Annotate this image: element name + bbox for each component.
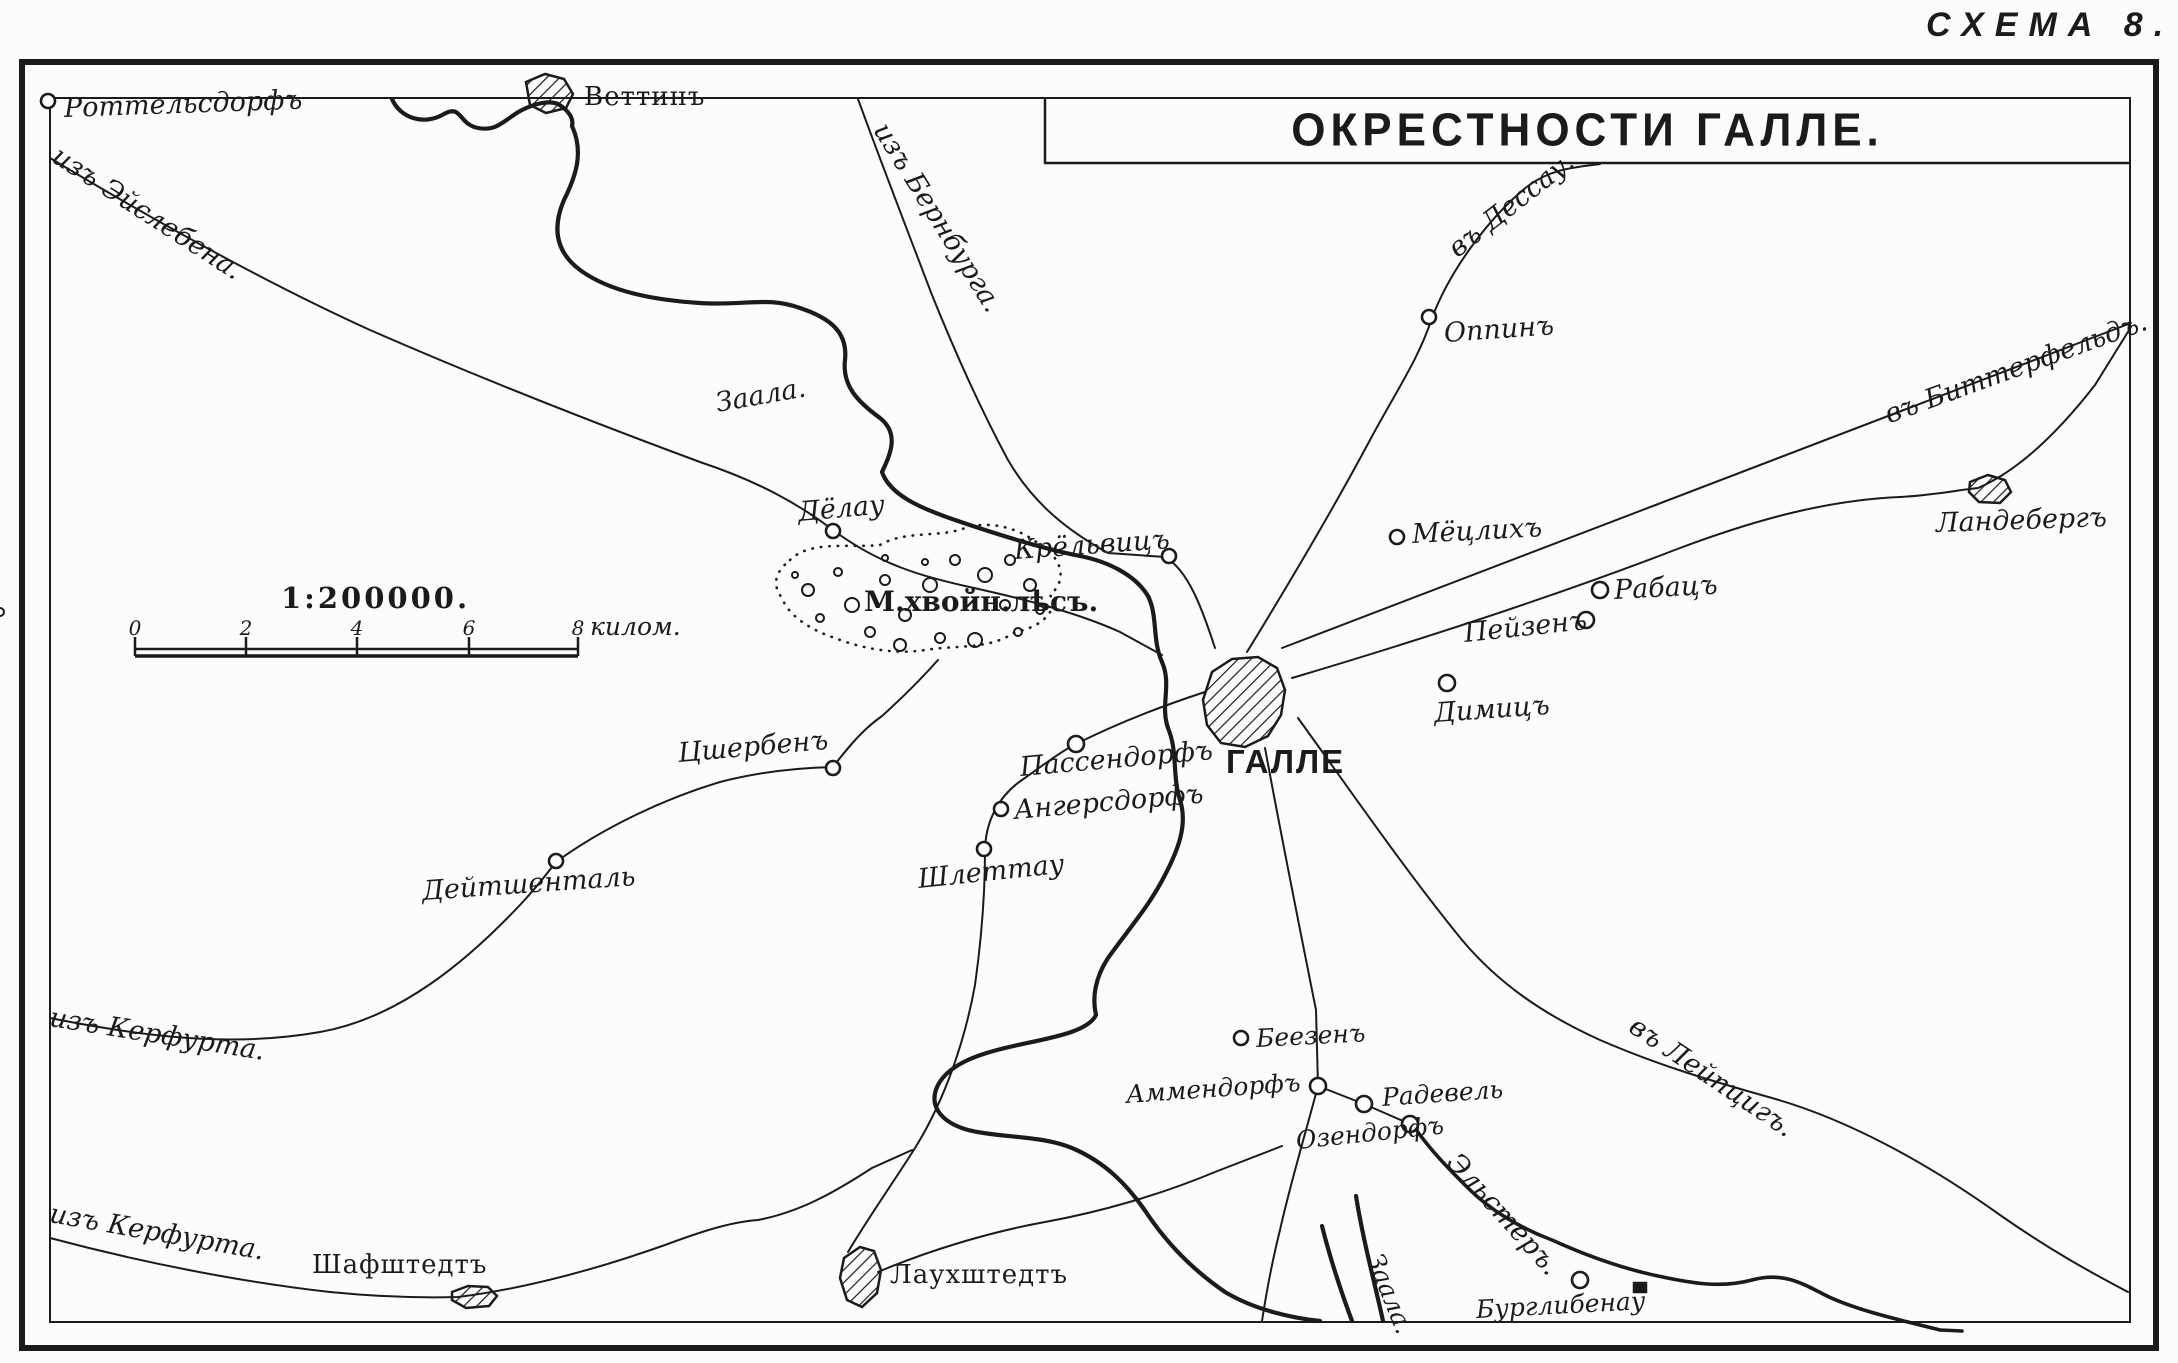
place-label-rottelsdorf: Роттельсдорфъ <box>64 87 303 122</box>
scheme-number-label: СХЕМА 8. <box>1926 8 2174 42</box>
town-wettin <box>526 74 573 113</box>
marker-burgliebenau <box>1572 1272 1588 1288</box>
town-halle <box>1203 657 1285 747</box>
place-label-oppin: Оппинъ <box>1443 312 1555 347</box>
forest-label: М.хвойн.лѣсъ. <box>864 588 1098 616</box>
road-to-leipzig <box>1298 718 2128 1292</box>
place-label-delau: Дёлау <box>797 491 886 525</box>
road-to-dessau <box>1247 164 1600 652</box>
place-label-diemitz: Димицъ <box>1433 692 1551 727</box>
place-label-wettin: Веттинъ <box>584 84 705 110</box>
marker-oppin <box>1422 310 1436 324</box>
marker-diemitz <box>1439 675 1455 691</box>
place-label-halle: ГАЛЛЕ <box>1226 745 1345 778</box>
saale-lower-channel-1 <box>1322 1226 1352 1321</box>
scale-tick-0: 0 <box>129 618 142 638</box>
place-label-lauchstedt: Лаухштедтъ <box>890 1262 1068 1288</box>
scale-tick-6: 6 <box>463 618 476 638</box>
scale-unit-label: килом. <box>590 614 681 639</box>
roads <box>50 99 2131 1321</box>
road-zscherben-link <box>833 660 938 767</box>
town-schafstedt <box>452 1286 497 1308</box>
place-label-schafstedt: Шафштедтъ <box>312 1252 487 1278</box>
map-canvas <box>0 0 2178 1363</box>
place-label-beesen: Беезенъ <box>1255 1020 1366 1051</box>
scale-tick-4: 4 <box>351 618 364 638</box>
map-title: ОКРЕСТНОСТИ ГАЛЛЕ. <box>1291 104 1884 157</box>
saale-river <box>392 99 1320 1321</box>
place-label-moetzlich: Мёцлихъ <box>1411 514 1543 548</box>
map-sheet: СХЕМА 8. ОКРЕСТНОСТИ ГАЛЛЕ. 1:200000. 0 … <box>0 0 2178 1363</box>
town-landeberg <box>1969 475 2011 503</box>
marker-zscherben <box>826 761 840 775</box>
marker-radewell <box>1356 1096 1372 1112</box>
marker-delau <box>826 524 840 538</box>
road-lauchstedt-east <box>878 1146 1282 1272</box>
place-label-landeberg: Ландебергъ <box>1936 504 2108 537</box>
marker-ammendorf <box>1310 1078 1326 1094</box>
town-lauchstedt <box>840 1247 881 1307</box>
road-south-exit <box>1262 1086 1318 1321</box>
rivers <box>392 99 1962 1331</box>
road-from-eisleben <box>50 158 1162 655</box>
place-label-rabatz: Рабацъ <box>1613 572 1718 604</box>
scale-tick-2: 2 <box>240 618 253 638</box>
marker-rottelsdorf <box>41 94 55 108</box>
map-title-box: ОКРЕСТНОСТИ ГАЛЛЕ. <box>1045 98 2130 163</box>
marker-schlettau <box>977 842 991 856</box>
marker-angersdorf <box>994 802 1008 816</box>
marker-rabatz <box>1592 582 1608 598</box>
marker-beesen <box>1234 1031 1248 1045</box>
scale-ratio-label: 1:200000. <box>281 584 470 613</box>
scale-tick-8: 8 <box>572 618 585 638</box>
marker-moetzlich <box>1390 530 1404 544</box>
